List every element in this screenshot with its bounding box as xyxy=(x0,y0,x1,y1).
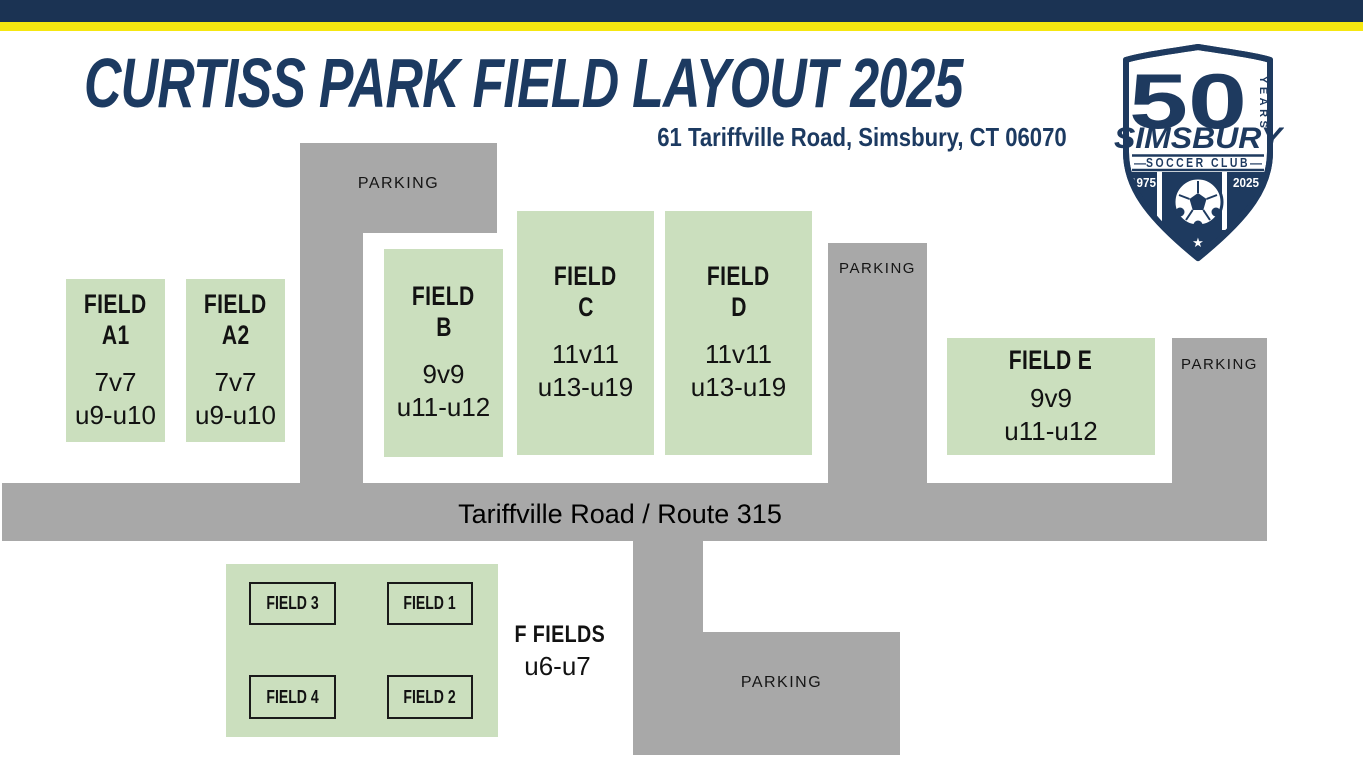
logo-club-name: SIMSBURY xyxy=(1114,122,1284,155)
field-layout-map: CURTISS PARK FIELD LAYOUT 2025 61 Tariff… xyxy=(0,0,1363,770)
top-navy-bar xyxy=(0,0,1363,22)
f-fields-label: F FIELDS xyxy=(514,621,600,648)
field-e: FIELD E 9v9 u11-u12 xyxy=(947,338,1155,455)
field-b-title-line2: B xyxy=(436,312,452,343)
field-a1-ages: u9-u10 xyxy=(75,399,156,432)
field-d-title-line2: D xyxy=(731,292,747,323)
top-yellow-bar xyxy=(0,22,1363,31)
field-a1-format: 7v7 xyxy=(95,366,137,399)
driveway-top xyxy=(300,233,363,483)
field-c-title-line2: C xyxy=(578,292,594,323)
field-1-label: FIELD 1 xyxy=(404,593,456,614)
field-c-ages: u13-u19 xyxy=(538,371,633,404)
parking-lot-right-label: PARKING xyxy=(1172,356,1267,373)
field-b-format: 9v9 xyxy=(423,358,465,391)
field-3-box: FIELD 3 xyxy=(249,582,336,625)
field-a2: FIELD A2 7v7 u9-u10 xyxy=(186,279,285,442)
field-d-format: 11v11 xyxy=(705,338,772,371)
field-a1-title-line1: FIELD xyxy=(84,289,147,320)
star-icon: ★ xyxy=(1192,236,1204,251)
field-a2-format: 7v7 xyxy=(215,366,257,399)
field-c-title-line1: FIELD xyxy=(554,261,617,292)
f-fields-ages: u6-u7 xyxy=(505,650,610,683)
field-c: FIELD C 11v11 u13-u19 xyxy=(517,211,654,455)
parking-lot-middle-label: PARKING xyxy=(828,260,927,277)
field-b-title-line1: FIELD xyxy=(412,281,475,312)
field-a1-title-line2: A1 xyxy=(102,320,130,351)
field-d-title-line1: FIELD xyxy=(707,261,770,292)
field-d-ages: u13-u19 xyxy=(691,371,786,404)
logo-banner-dash: — xyxy=(1134,156,1146,170)
parking-lot-bottom-label: PARKING xyxy=(663,674,900,692)
field-2-label: FIELD 2 xyxy=(404,687,456,708)
field-3-label: FIELD 3 xyxy=(266,593,318,614)
field-2-box: FIELD 2 xyxy=(387,675,473,719)
road-label: Tariffville Road / Route 315 xyxy=(420,499,820,530)
page-title: CURTISS PARK FIELD LAYOUT 2025 xyxy=(84,48,963,118)
field-1-box: FIELD 1 xyxy=(387,582,473,625)
field-e-title: FIELD E xyxy=(1009,345,1092,376)
field-4-label: FIELD 4 xyxy=(266,687,318,708)
field-a2-title-line2: A2 xyxy=(222,320,250,351)
field-a2-ages: u9-u10 xyxy=(195,399,276,432)
logo-banner-dash: — xyxy=(1250,156,1262,170)
logo-year-current: 2025 xyxy=(1233,175,1259,190)
field-c-format: 11v11 xyxy=(552,338,619,371)
parking-lot-bottom xyxy=(633,632,900,755)
field-e-ages: u11-u12 xyxy=(1004,415,1098,448)
field-4-box: FIELD 4 xyxy=(249,675,336,719)
address-subtitle: 61 Tariffville Road, Simsbury, CT 06070 xyxy=(658,123,1067,152)
f-fields-legend: F FIELDS u6-u7 xyxy=(505,621,610,684)
field-a1: FIELD A1 7v7 u9-u10 xyxy=(66,279,165,442)
field-a2-title-line1: FIELD xyxy=(204,289,267,320)
club-logo: 1975 2025 ★ ★ ★ 50 YEARS SIMSBU xyxy=(1112,44,1284,262)
parking-lot-top-label: PARKING xyxy=(300,175,497,193)
field-b: FIELD B 9v9 u11-u12 xyxy=(384,249,503,457)
field-b-ages: u11-u12 xyxy=(397,391,491,424)
parking-lot-middle xyxy=(828,243,927,483)
field-d: FIELD D 11v11 u13-u19 xyxy=(665,211,812,455)
field-e-format: 9v9 xyxy=(1030,382,1072,415)
logo-club-type: SOCCER CLUB xyxy=(1146,156,1250,170)
